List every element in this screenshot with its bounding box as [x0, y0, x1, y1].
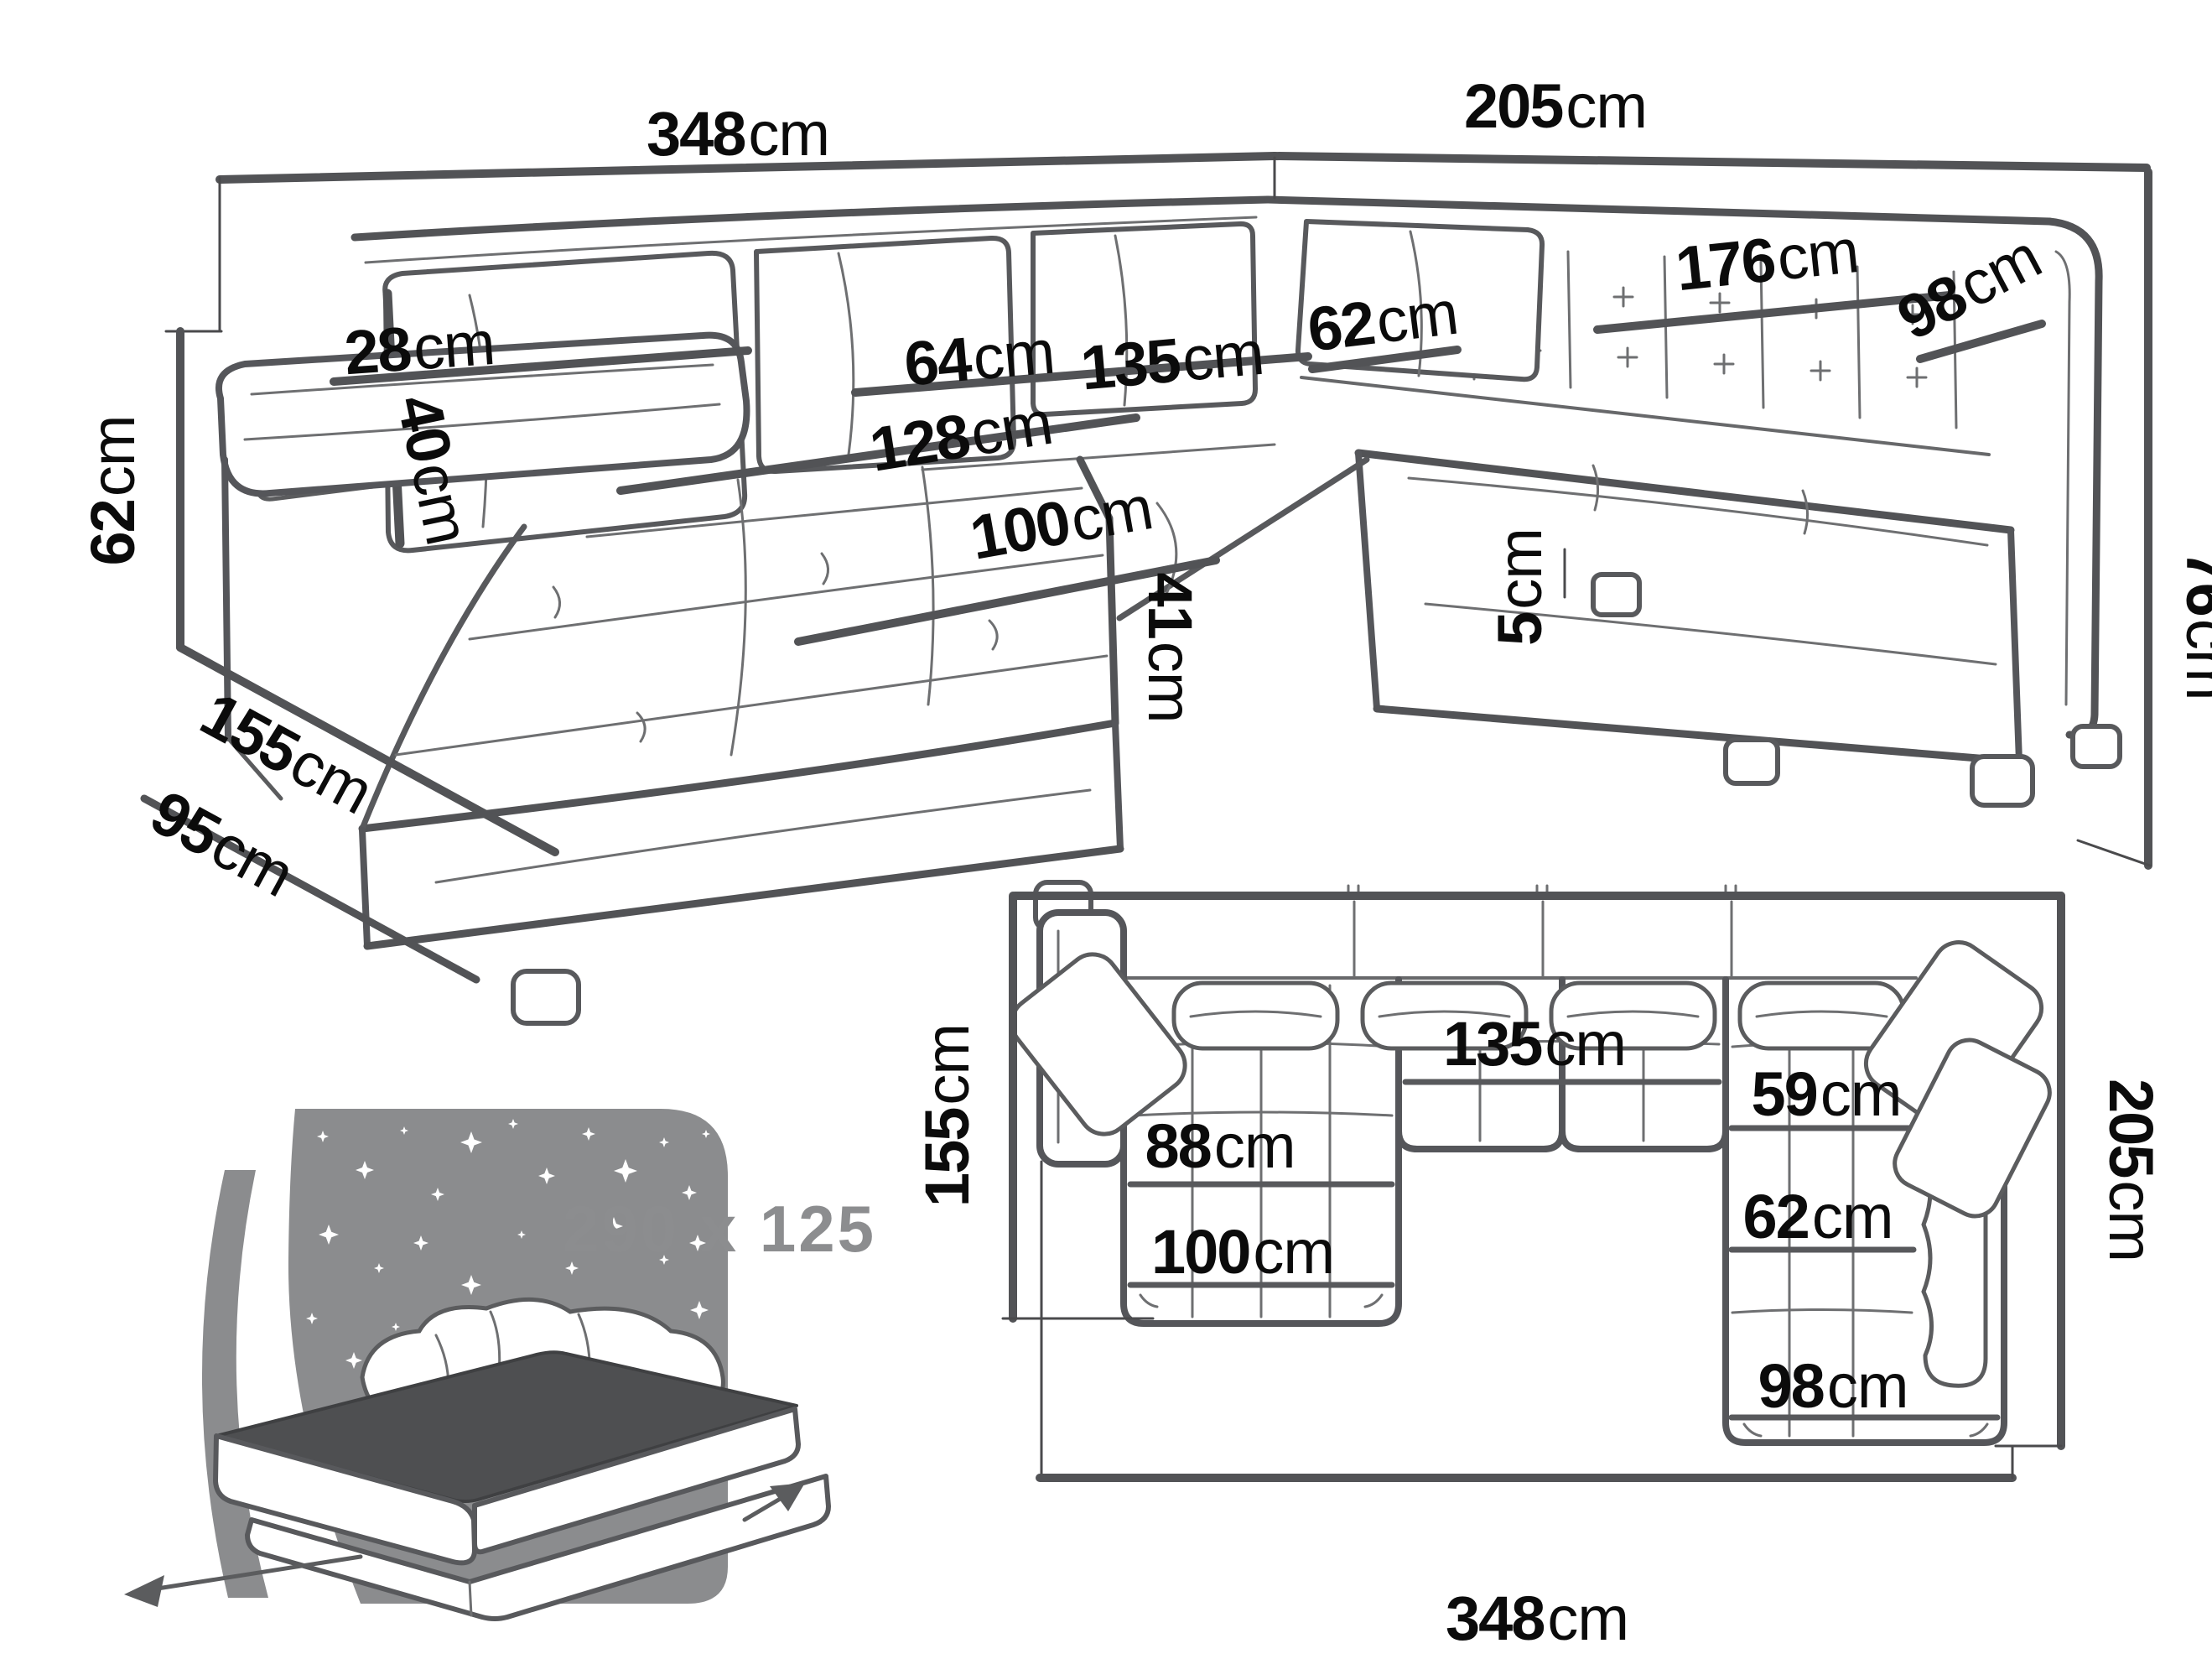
- sleeping-function-icon: 290 x 125: [124, 1109, 876, 1619]
- dim-label-64: 64cm: [901, 316, 1057, 398]
- dim-label-62-top: 62cm: [1743, 1182, 1893, 1251]
- dim-label-100-top: 100cm: [1151, 1217, 1334, 1287]
- dim-label-205-top: 205cm: [2096, 1079, 2166, 1261]
- dim-label-98-perspective: 98cm: [1887, 221, 2052, 353]
- dim-label-88-top: 88cm: [1145, 1111, 1296, 1181]
- dim-label-41: 41cm: [1135, 573, 1205, 723]
- dim-label-28: 28cm: [342, 308, 496, 387]
- dim-label-176: 176cm: [1673, 216, 1862, 304]
- dim-label-100-perspective: 100cm: [965, 472, 1157, 573]
- diagram-canvas: 348cm 205cm 40cm 28cm 62cm 95cm 155cm 64…: [0, 0, 2212, 1659]
- dim-label-155-top: 155cm: [912, 1024, 982, 1207]
- dim-label-135-top: 135cm: [1443, 1009, 1626, 1079]
- dim-label-59-top: 59cm: [1752, 1059, 1902, 1129]
- dim-label-5: 5cm: [1485, 528, 1555, 646]
- sleeping-size-label: 290 x 125: [563, 1192, 876, 1266]
- dim-label-76: 76cm: [2173, 550, 2212, 700]
- sofa-dimension-sheet: { "page": {"title": "U-shaped corner sof…: [0, 0, 2212, 1659]
- perspective-view: 348cm 205cm 40cm 28cm 62cm 95cm 155cm 64…: [78, 71, 2212, 1023]
- dim-label-205-perspective: 205cm: [1464, 71, 1647, 141]
- top-view: 155cm 88cm 135cm 59cm 62cm 100cm 98cm 20…: [912, 886, 2166, 1653]
- dim-label-62-left: 62cm: [78, 416, 148, 566]
- dim-label-348-top: 348cm: [1446, 1584, 1628, 1653]
- dim-label-98-top: 98cm: [1758, 1351, 1908, 1421]
- dim-label-348-perspective: 348cm: [646, 99, 829, 169]
- sofa-feet: [513, 575, 2120, 1023]
